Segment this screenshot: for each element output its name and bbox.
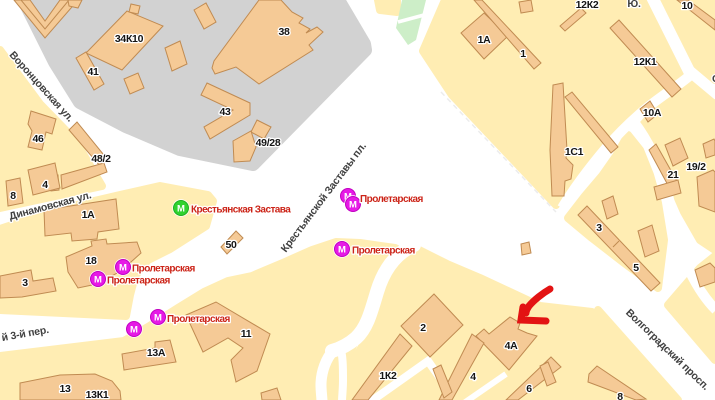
svg-text:46: 46	[32, 133, 44, 145]
svg-text:Крестьянская Застава: Крестьянская Застава	[191, 205, 291, 216]
svg-text:1А: 1А	[82, 209, 96, 221]
svg-text:38: 38	[278, 26, 290, 38]
svg-text:5: 5	[633, 262, 639, 274]
svg-text:10: 10	[681, 0, 693, 12]
svg-text:Пролетарская: Пролетарская	[107, 276, 170, 287]
svg-text:8: 8	[10, 190, 16, 202]
svg-text:1К2: 1К2	[379, 370, 397, 382]
svg-text:4: 4	[42, 179, 48, 191]
svg-text:М: М	[94, 275, 102, 286]
svg-text:18: 18	[85, 255, 97, 267]
svg-text:10А: 10А	[643, 107, 662, 119]
svg-text:Пролетарская: Пролетарская	[132, 264, 195, 275]
svg-text:М: М	[349, 200, 357, 211]
svg-text:Пролетарская: Пролетарская	[360, 194, 423, 205]
svg-text:Пролетарская: Пролетарская	[167, 314, 230, 325]
svg-text:3: 3	[596, 222, 602, 234]
svg-text:43: 43	[219, 106, 231, 118]
svg-text:12К1: 12К1	[634, 56, 657, 68]
svg-text:1: 1	[520, 48, 526, 60]
svg-text:13К1: 13К1	[86, 389, 109, 400]
svg-text:Пролетарская: Пролетарская	[352, 246, 415, 257]
svg-text:34К10: 34К10	[115, 33, 144, 45]
svg-text:М: М	[338, 245, 346, 256]
svg-text:12К2: 12К2	[576, 0, 599, 11]
svg-text:8: 8	[617, 391, 623, 400]
svg-text:49/28: 49/28	[256, 137, 281, 149]
svg-text:48/2: 48/2	[91, 153, 111, 165]
svg-text:41: 41	[87, 66, 99, 78]
svg-text:13: 13	[59, 383, 71, 395]
svg-text:21: 21	[667, 169, 679, 181]
svg-text:4: 4	[470, 371, 476, 383]
svg-text:М: М	[154, 313, 162, 324]
svg-text:11: 11	[241, 328, 252, 340]
svg-text:3: 3	[22, 277, 28, 289]
svg-text:1А: 1А	[478, 34, 492, 46]
svg-text:4А: 4А	[505, 340, 519, 352]
svg-text:1С1: 1С1	[565, 146, 584, 158]
svg-text:19/2: 19/2	[686, 161, 706, 173]
svg-text:М: М	[119, 263, 127, 274]
svg-text:М: М	[130, 325, 138, 336]
svg-text:М: М	[177, 204, 185, 215]
svg-text:Ю.: Ю.	[627, 0, 641, 10]
svg-text:50: 50	[225, 239, 237, 251]
svg-text:13А: 13А	[147, 347, 166, 359]
svg-text:2: 2	[420, 322, 426, 334]
svg-text:6: 6	[526, 383, 532, 395]
